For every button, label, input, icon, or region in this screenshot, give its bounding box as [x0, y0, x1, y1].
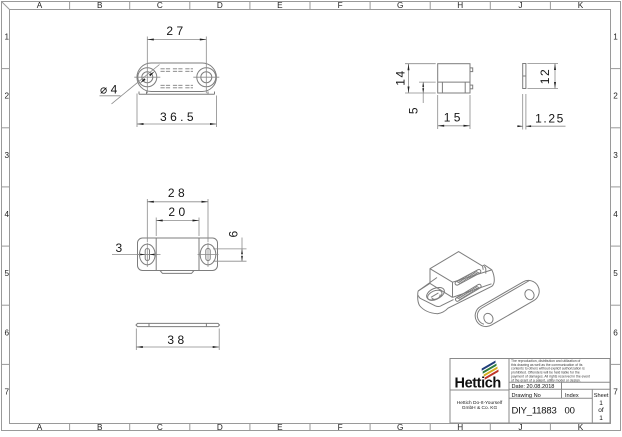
svg-text:20: 20: [168, 205, 188, 219]
svg-text:3: 3: [613, 151, 618, 160]
svg-text:K: K: [578, 423, 584, 432]
svg-text:E: E: [277, 1, 283, 10]
svg-text:A: A: [37, 1, 43, 10]
svg-text:15: 15: [444, 111, 464, 125]
svg-text:6: 6: [5, 328, 10, 337]
svg-text:3: 3: [115, 241, 125, 255]
svg-text:38: 38: [167, 333, 187, 347]
svg-text:1.25: 1.25: [535, 112, 565, 126]
svg-text:4: 4: [613, 210, 618, 219]
svg-text:1: 1: [5, 33, 10, 42]
svg-text:F: F: [338, 423, 343, 432]
svg-text:J: J: [518, 1, 522, 10]
svg-text:Hettich: Hettich: [455, 376, 501, 392]
svg-text:J: J: [518, 423, 522, 432]
svg-text:6: 6: [613, 328, 618, 337]
svg-text:Sheet: Sheet: [594, 393, 609, 399]
svg-text:Date: 20.08.2018: Date: 20.08.2018: [512, 384, 555, 390]
svg-text:B: B: [97, 1, 103, 10]
svg-text:5: 5: [407, 106, 421, 114]
svg-text:5: 5: [5, 269, 10, 278]
svg-text:1: 1: [599, 415, 603, 422]
svg-text:Drawing No: Drawing No: [512, 393, 541, 399]
svg-text:12: 12: [538, 68, 552, 85]
svg-text:H: H: [457, 1, 463, 10]
svg-text:28: 28: [168, 186, 188, 200]
svg-text:7: 7: [5, 387, 10, 396]
svg-text:3: 3: [5, 151, 10, 160]
svg-text:G: G: [397, 1, 403, 10]
svg-text:DIY_11883: DIY_11883: [512, 406, 557, 417]
svg-text:D: D: [217, 1, 223, 10]
svg-text:27: 27: [166, 24, 186, 38]
svg-text:A: A: [37, 423, 43, 432]
svg-text:Index: Index: [565, 393, 579, 399]
svg-text:14: 14: [394, 69, 408, 86]
svg-text:of: of: [598, 407, 604, 414]
svg-text:F: F: [338, 1, 343, 10]
svg-text:GmbH & Co. KG: GmbH & Co. KG: [462, 405, 498, 411]
svg-text:E: E: [277, 423, 283, 432]
svg-text:2: 2: [5, 92, 10, 101]
svg-text:36.5: 36.5: [160, 110, 197, 124]
svg-text:K: K: [578, 1, 584, 10]
svg-text:6: 6: [226, 229, 240, 237]
svg-text:1: 1: [613, 33, 618, 42]
svg-text:D: D: [217, 423, 223, 432]
svg-text:1: 1: [599, 400, 603, 407]
svg-text:4: 4: [5, 210, 10, 219]
svg-text:B: B: [97, 423, 103, 432]
svg-text:G: G: [397, 423, 403, 432]
svg-text:5: 5: [613, 269, 618, 278]
svg-text:2: 2: [613, 92, 618, 101]
svg-text:C: C: [157, 1, 163, 10]
svg-text:7: 7: [613, 387, 618, 396]
svg-text:C: C: [157, 423, 163, 432]
svg-text:⌀4: ⌀4: [100, 83, 121, 97]
svg-text:00: 00: [565, 406, 575, 417]
svg-text:H: H: [457, 423, 463, 432]
